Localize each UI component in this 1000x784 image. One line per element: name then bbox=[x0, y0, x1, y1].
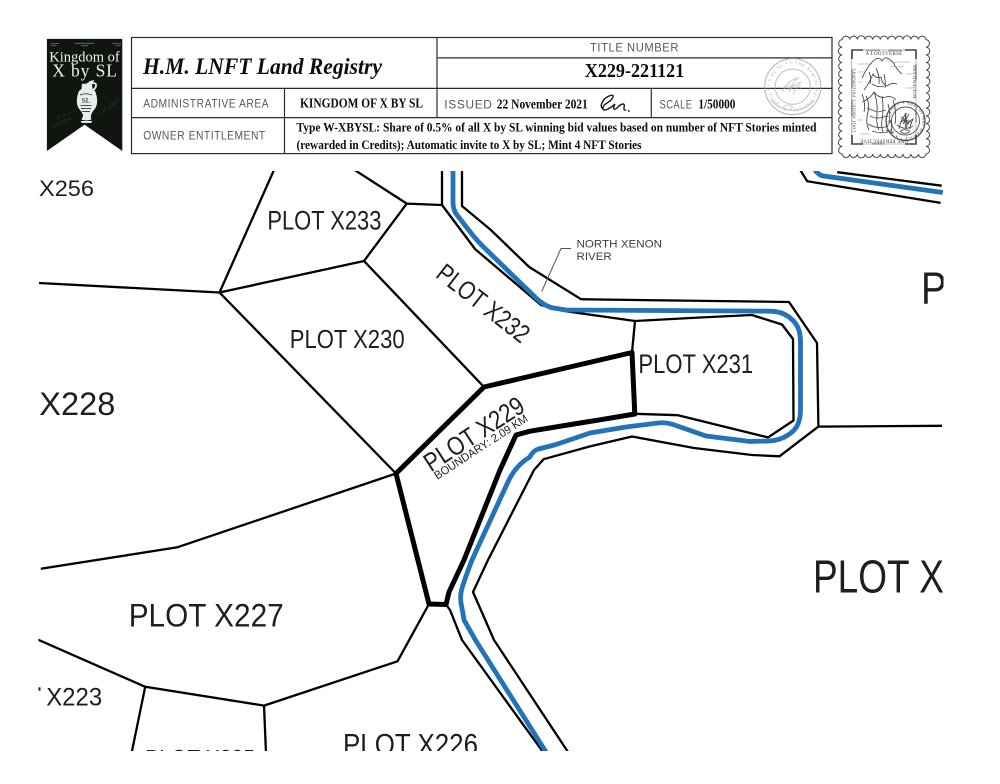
svg-text:X by SL: X by SL bbox=[52, 61, 118, 81]
svg-text:22 November 2021: 22 November 2021 bbox=[497, 97, 588, 112]
svg-text:X256: X256 bbox=[39, 176, 94, 201]
svg-text:X229-221121: X229-221121 bbox=[585, 61, 685, 82]
svg-text:LOTLK: LOTLK bbox=[784, 85, 803, 91]
svg-text:Type W-XBYSL: Share of 0.5% of: Type W-XBYSL: Share of 0.5% of all X by … bbox=[297, 120, 818, 135]
svg-text:OWNER ENTITLEMENT: OWNER ENTITLEMENT bbox=[143, 129, 266, 143]
svg-text:PLOT X231: PLOT X231 bbox=[638, 349, 753, 379]
svg-text:NORTH XENON: NORTH XENON bbox=[577, 238, 663, 250]
svg-text:X228: X228 bbox=[39, 386, 115, 422]
svg-text:ISSUED: ISSUED bbox=[444, 98, 492, 112]
svg-text:PLOT X233: PLOT X233 bbox=[267, 206, 381, 236]
svg-text:1/50000: 1/50000 bbox=[698, 97, 735, 112]
svg-text:KINGDOM OF X BY SL: KINGDOM OF X BY SL bbox=[300, 96, 423, 111]
svg-text:PLOT X227: PLOT X227 bbox=[129, 597, 284, 633]
svg-text:P: P bbox=[921, 263, 947, 314]
svg-text:ADMINISTRATIVE AREA: ADMINISTRATIVE AREA bbox=[143, 97, 269, 111]
svg-text:SL: SL bbox=[82, 96, 91, 105]
svg-text:PLOT X230: PLOT X230 bbox=[290, 324, 405, 354]
svg-text:TITLE NUMBER: TITLE NUMBER bbox=[590, 43, 679, 55]
svg-text:(rewarded in Credits); Automat: (rewarded in Credits); Automatic invite … bbox=[297, 137, 642, 152]
svg-text:H.M. LNFT Land Registry: H.M. LNFT Land Registry bbox=[142, 54, 383, 79]
svg-text:SCALE: SCALE bbox=[660, 98, 693, 112]
svg-text:X223: X223 bbox=[46, 684, 102, 712]
svg-text:A LOOTVERSE: A LOOTVERSE bbox=[865, 52, 902, 57]
svg-text:DESTINATION: DESTINATION bbox=[912, 65, 917, 99]
svg-text:RIVER: RIVER bbox=[577, 251, 612, 263]
svg-text:LOOT PROJECT PHILOSOPHY: LOOT PROJECT PHILOSOPHY bbox=[851, 67, 856, 132]
